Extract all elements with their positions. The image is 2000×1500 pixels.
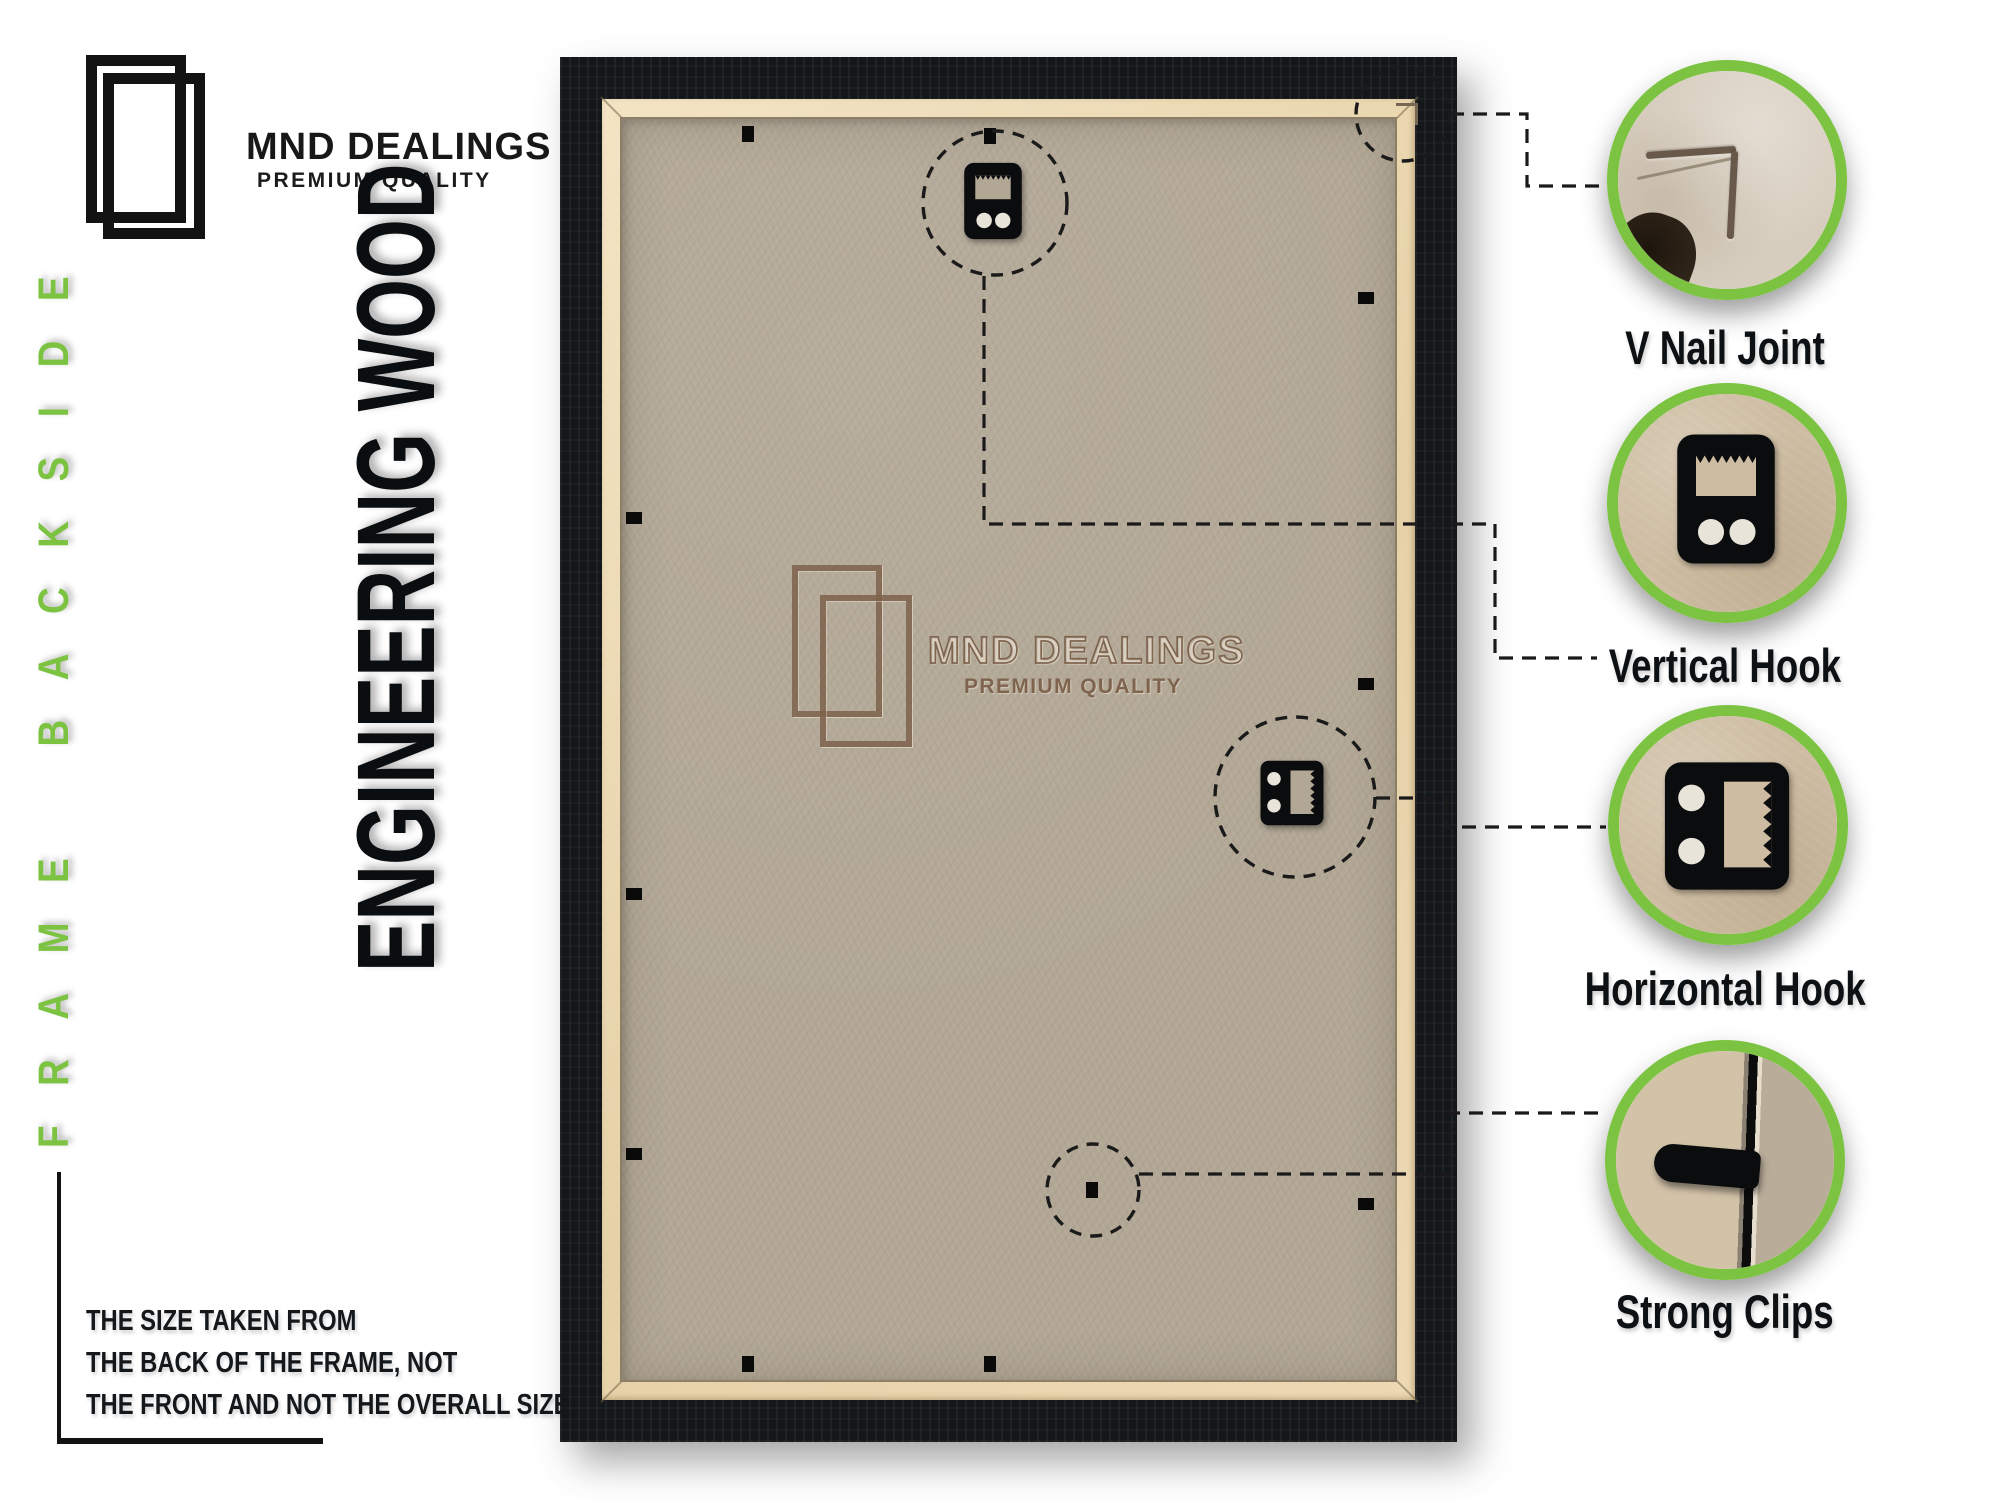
strong-clips-label: Strong Clips	[1505, 1284, 1945, 1339]
staple-mark-icon	[1358, 292, 1374, 304]
staple-mark-icon	[626, 1148, 642, 1160]
horizontal-hook-label: Horizontal Hook	[1505, 961, 1945, 1016]
strong-clip-icon	[1653, 1142, 1762, 1189]
staple-mark-icon	[984, 1356, 996, 1372]
vertical-hook-label: Vertical Hook	[1505, 638, 1945, 693]
horizontal-hook-icon	[1259, 748, 1325, 838]
vertical-hook-icon	[1671, 430, 1781, 568]
disclaimer-line: THE BACK OF THE FRAME, NOT	[86, 1342, 576, 1384]
watermark-brand-tagline: PREMIUM QUALITY	[964, 675, 1182, 699]
frame-backside-infographic: MND DEALINGS PREMIUM QUALITY FRAME BACKS…	[0, 0, 2000, 1500]
picture-frame-back: MND DEALINGS PREMIUM QUALITY	[560, 57, 1457, 1442]
disclaimer-bracket-line	[57, 1438, 323, 1444]
strong-clips-callout	[1605, 1040, 1845, 1280]
side-label-vertical: FRAME BACKSIDE	[30, 320, 86, 1148]
v-nail-groove-icon	[1646, 146, 1736, 159]
v-nail-joint-callout	[1607, 60, 1847, 300]
horizontal-hook-icon	[1661, 758, 1793, 894]
horizontal-hook-photo	[1619, 716, 1837, 934]
vertical-hook-icon	[962, 158, 1024, 244]
disclaimer-line: THE SIZE TAKEN FROM	[86, 1300, 576, 1342]
vertical-hook-callout	[1607, 383, 1847, 623]
v-nail-corner-icon	[1415, 103, 1418, 125]
vertical-hook-photo	[1618, 394, 1836, 612]
staple-mark-icon	[1358, 678, 1374, 690]
wood-crack-line	[1637, 157, 1733, 180]
disclaimer-bracket-line	[57, 1172, 61, 1442]
size-disclaimer: THE SIZE TAKEN FROM THE BACK OF THE FRAM…	[86, 1300, 684, 1426]
connector-line-v-nail	[1450, 114, 1608, 186]
staple-mark-icon	[742, 1356, 754, 1372]
v-nail-joint-label: V Nail Joint	[1505, 320, 1945, 375]
strong-clip-icon	[1086, 1182, 1098, 1198]
watermark-double-frame-icon-front	[820, 595, 912, 747]
wood-shadow-blob	[1607, 202, 1708, 300]
disclaimer-line: THE FRONT AND NOT THE OVERALL SIZE.	[86, 1384, 576, 1426]
side-label-text: FRAME BACKSIDE	[30, 237, 79, 1148]
staple-mark-icon	[626, 512, 642, 524]
mdf-board: MND DEALINGS PREMIUM QUALITY	[622, 119, 1395, 1380]
material-label-vertical: ENGINEERING WOOD	[336, 204, 458, 972]
horizontal-hook-callout	[1608, 705, 1848, 945]
strong-clips-photo	[1616, 1051, 1834, 1269]
v-nail-joint-photo	[1618, 71, 1836, 289]
v-nail-groove-icon	[1727, 151, 1739, 239]
staple-mark-icon	[984, 128, 996, 144]
staple-mark-icon	[1358, 1198, 1374, 1210]
double-frame-icon-front	[103, 73, 205, 239]
staple-mark-icon	[742, 126, 754, 142]
staple-mark-icon	[626, 888, 642, 900]
watermark-brand-name: MND DEALINGS	[928, 630, 1245, 673]
material-label-text: ENGINEERING WOOD	[336, 163, 458, 972]
